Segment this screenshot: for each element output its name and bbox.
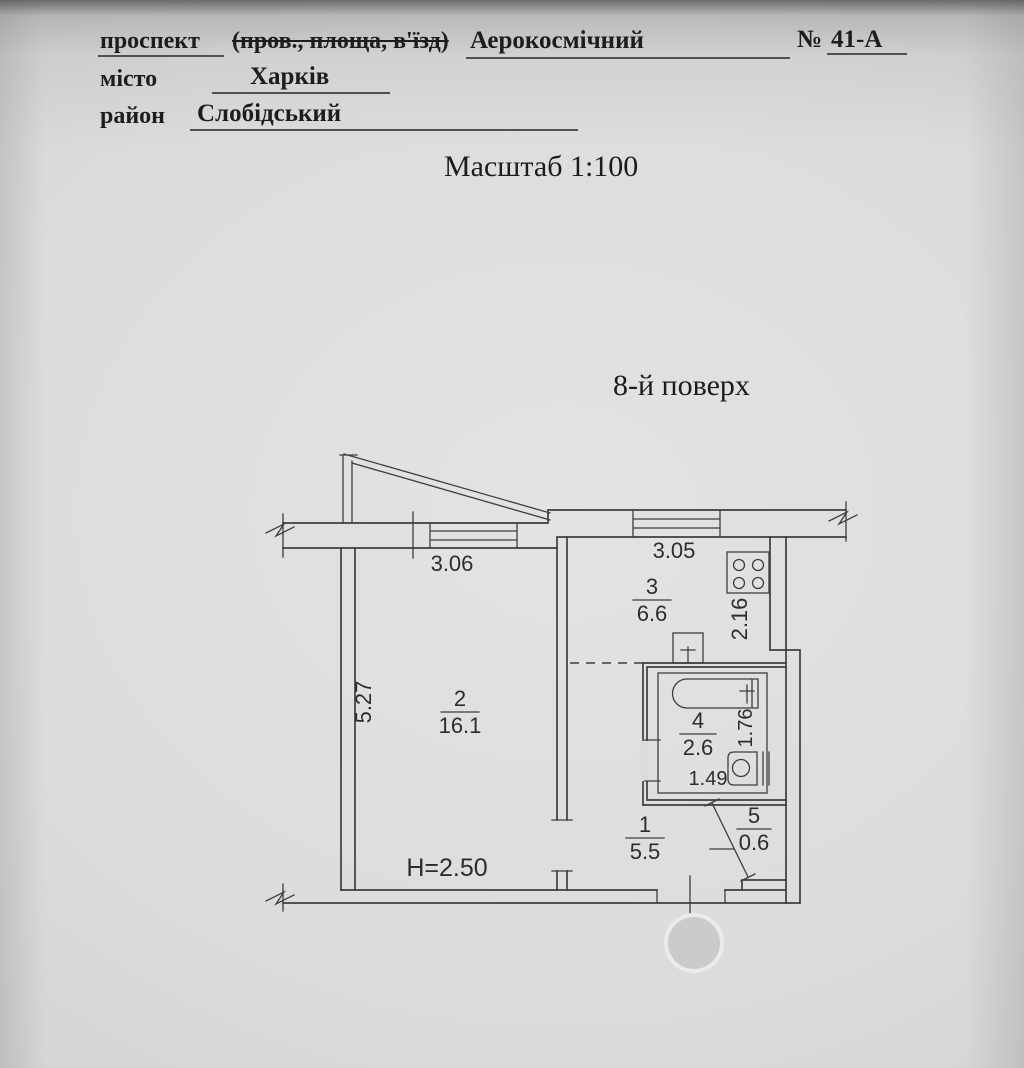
svg-text:4: 4 (692, 708, 704, 733)
plan-label-ceiling-height: H=2.50 (406, 854, 487, 882)
svg-text:1.49: 1.49 (689, 768, 728, 790)
plan-label-room-1: 15.5 (626, 812, 664, 864)
svg-text:0.6: 0.6 (739, 830, 770, 855)
svg-text:2.6: 2.6 (683, 735, 714, 760)
svg-text:16.1: 16.1 (439, 713, 482, 738)
plan-labels: 216.136.642.615.550.63.063.055.272.161.7… (351, 538, 771, 882)
svg-text:5: 5 (748, 803, 760, 828)
svg-text:5.5: 5.5 (630, 839, 661, 864)
entrance-door-opening (657, 876, 725, 915)
svg-text:2.16: 2.16 (727, 598, 752, 641)
toilet-icon (728, 752, 769, 785)
closet-walls (742, 880, 786, 890)
stove-icon (727, 552, 769, 593)
floor-plan-drawing: 216.136.642.615.550.63.063.055.272.161.7… (0, 0, 1024, 1068)
svg-text:3.05: 3.05 (653, 538, 696, 563)
plan-label-room-3: 36.6 (633, 574, 671, 626)
svg-text:3.06: 3.06 (431, 551, 474, 576)
svg-text:5.27: 5.27 (351, 681, 376, 724)
vent-duct-box (673, 633, 703, 663)
balcony-outline (340, 454, 550, 523)
svg-text:1: 1 (639, 812, 651, 837)
plan-label-dim-3-05: 3.05 (653, 538, 696, 563)
scanned-technical-passport-page: проспект (пров., площа, в'їзд) Аерокосмі… (0, 0, 1024, 1068)
plan-label-dim-1-76: 1.76 (735, 709, 757, 748)
plan-label-room-4: 42.6 (680, 708, 716, 760)
plan-label-room-5: 50.6 (737, 803, 771, 855)
plan-label-dim-2-16: 2.16 (727, 598, 752, 641)
svg-text:2: 2 (454, 686, 466, 711)
svg-text:H=2.50: H=2.50 (406, 854, 487, 882)
window-kitchen (633, 510, 720, 537)
stamp-circle (666, 915, 722, 971)
svg-text:6.6: 6.6 (637, 601, 668, 626)
plan-label-dim-5-27: 5.27 (351, 681, 376, 724)
partition-wall-with-door-opening (552, 537, 572, 890)
plan-label-room-2: 216.1 (439, 686, 482, 738)
bathroom-door-opening (641, 741, 649, 781)
svg-text:1.76: 1.76 (735, 709, 757, 748)
plan-label-dim-1-49: 1.49 (689, 768, 728, 790)
svg-text:3: 3 (646, 574, 658, 599)
bathtub-icon (673, 679, 759, 708)
plan-label-dim-3-06: 3.06 (431, 551, 474, 576)
